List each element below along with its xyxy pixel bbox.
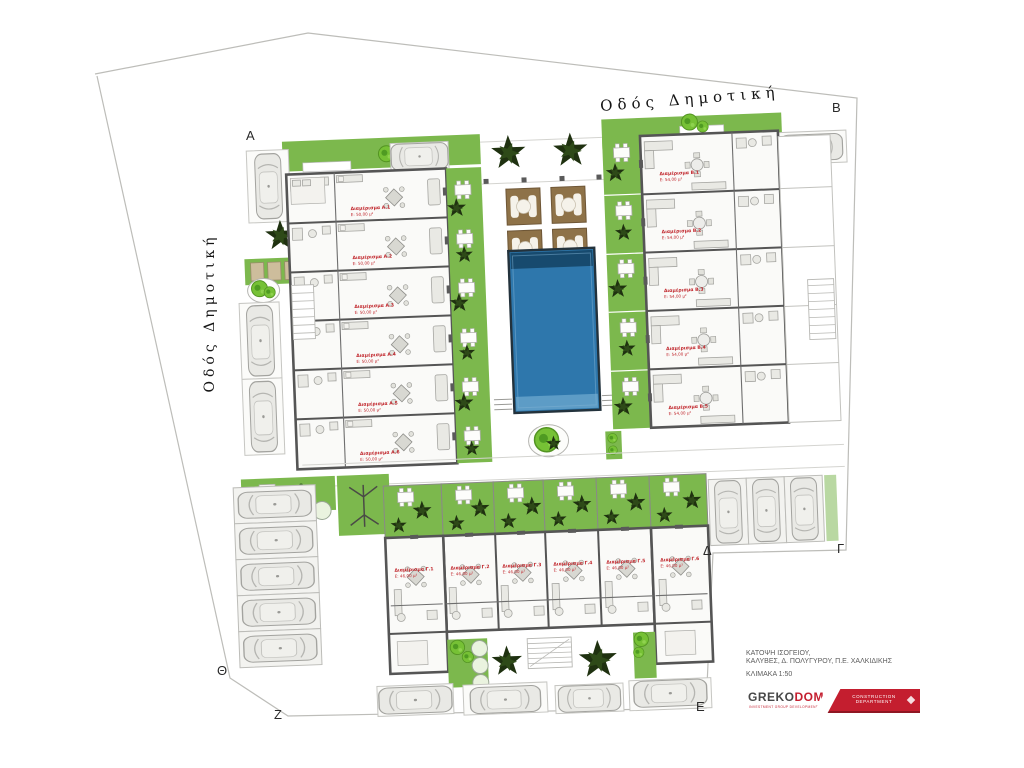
palm-tree-icon [491,645,522,675]
car-icon [470,685,541,714]
car-icon [239,526,313,555]
bed [397,641,428,666]
shrub-icon [472,657,489,674]
corner-marker-epsilon: Ε [696,699,705,714]
palm-tree-icon [553,132,588,166]
car-icon [254,153,282,219]
svg-text:Ε: 50,00 μ²: Ε: 50,00 μ² [351,211,374,217]
right-building: Διαμέρισμα Β.1 Ε: 54,00 μ² Διαμέρισμα Β.… [638,131,789,428]
shrub-icon [633,647,644,658]
svg-text:Ε: 54,00 μ²: Ε: 54,00 μ² [669,410,692,416]
svg-text:Ε: 50,00 μ²: Ε: 50,00 μ² [358,407,381,413]
corner-marker-delta: Δ [703,543,712,558]
shrub-icon [608,433,618,443]
bed [665,630,696,655]
svg-text:Ε: 54,00 μ²: Ε: 54,00 μ² [662,234,685,240]
pergola [506,188,541,225]
logo-wordmark: GREKODOM [748,690,824,704]
title-block: ΚΑΤΟΨΗ ΙΣΟΓΕΙΟΥ, ΚΑΛΥΒΕΣ, Δ. ΠΟΛΥΓΥΡΟΥ, … [746,650,892,666]
palm-tree-icon [491,134,526,168]
car-icon [249,381,278,452]
palm-tree-icon [578,639,617,677]
bottom-court [447,632,657,692]
swimming-pool [508,248,600,413]
svg-text:Ε: 46,00 μ²: Ε: 46,00 μ² [606,565,629,571]
shrub-icon [264,286,276,298]
corner-marker-theta: Θ [217,663,227,678]
logo-tagline: INVESTMENT GROUP DEVELOPMENT [749,705,818,709]
svg-text:Ε: 54,00 μ²: Ε: 54,00 μ² [664,293,687,299]
plan-content: Διαμέρισμα Α.1 Ε: 50,00 μ² Διαμέρισμα Α.… [219,108,867,726]
bin-icon [268,262,282,280]
svg-text:Ε: 46,00 μ²: Ε: 46,00 μ² [553,567,576,573]
shrub-icon [462,651,474,663]
car-icon [246,305,275,376]
car-icon [242,598,316,627]
corner-marker-gamma: Γ [837,541,844,556]
shrub-icon [697,121,709,133]
svg-text:Ε: 46,00 μ²: Ε: 46,00 μ² [660,563,683,569]
svg-text:Ε: 46,00 μ²: Ε: 46,00 μ² [395,573,418,579]
grekodom-logo: GREKODOM INVESTMENT GROUP DEVELOPMENT CO… [746,689,920,713]
logo-emblem-icon [907,696,915,704]
svg-text:Ε: 50,00 μ²: Ε: 50,00 μ² [360,456,383,462]
title-line1: ΚΑΤΟΨΗ ΙΣΟΓΕΙΟΥ, [746,650,892,658]
car-icon [243,634,317,663]
car-icon [238,490,312,519]
car-icon [241,562,315,591]
corner-marker-zeta: Ζ [274,707,282,722]
car-icon [391,142,449,170]
svg-text:Ε: 46,00 μ²: Ε: 46,00 μ² [451,571,474,577]
shrub-icon [681,114,698,131]
scale-label: ΚΛΙΜΑΚΑ 1:50 [746,671,792,678]
svg-text:Ε: 46,00 μ²: Ε: 46,00 μ² [502,569,525,575]
svg-text:Ε: 50,00 μ²: Ε: 50,00 μ² [353,260,376,266]
car-icon [558,684,621,712]
shrub-icon [450,640,465,655]
car-icon [752,479,780,542]
svg-text:Ε: 54,00 μ²: Ε: 54,00 μ² [660,176,683,182]
courtyard [480,131,622,459]
svg-text:Ε: 50,00 μ²: Ε: 50,00 μ² [356,358,379,364]
car-icon [714,480,742,543]
street-label-left: Οδός Δημοτική [202,228,218,398]
parking-left [233,474,396,668]
left-building: Διαμέρισμα Α.1 Ε: 50,00 μ² Διαμέρισμα Α.… [286,168,457,469]
corner-marker-b: Β [832,100,841,115]
corner-marker-a: Α [246,128,255,143]
site-plan-page: Διαμέρισμα Α.1 Ε: 50,00 μ² Διαμέρισμα Α.… [0,0,1024,768]
pergola [551,186,586,223]
shrub-icon [634,632,649,647]
svg-text:Ε: 50,00 μ²: Ε: 50,00 μ² [354,309,377,315]
car-icon [790,477,818,540]
car-icon [379,686,453,715]
title-line2: ΚΑΛΥΒΕΣ, Δ. ΠΟΛΥΓΥΡΟΥ, Π.Ε. ΧΑΛΚΙΔΙΚΗΣ [746,658,892,666]
street-parking-bottom [377,674,712,721]
plan-tag [303,161,351,172]
parking-right [708,475,838,546]
right-terraces [778,135,841,423]
svg-text:Ε: 54,00 μ²: Ε: 54,00 μ² [666,351,689,357]
shrub-icon [471,640,488,657]
